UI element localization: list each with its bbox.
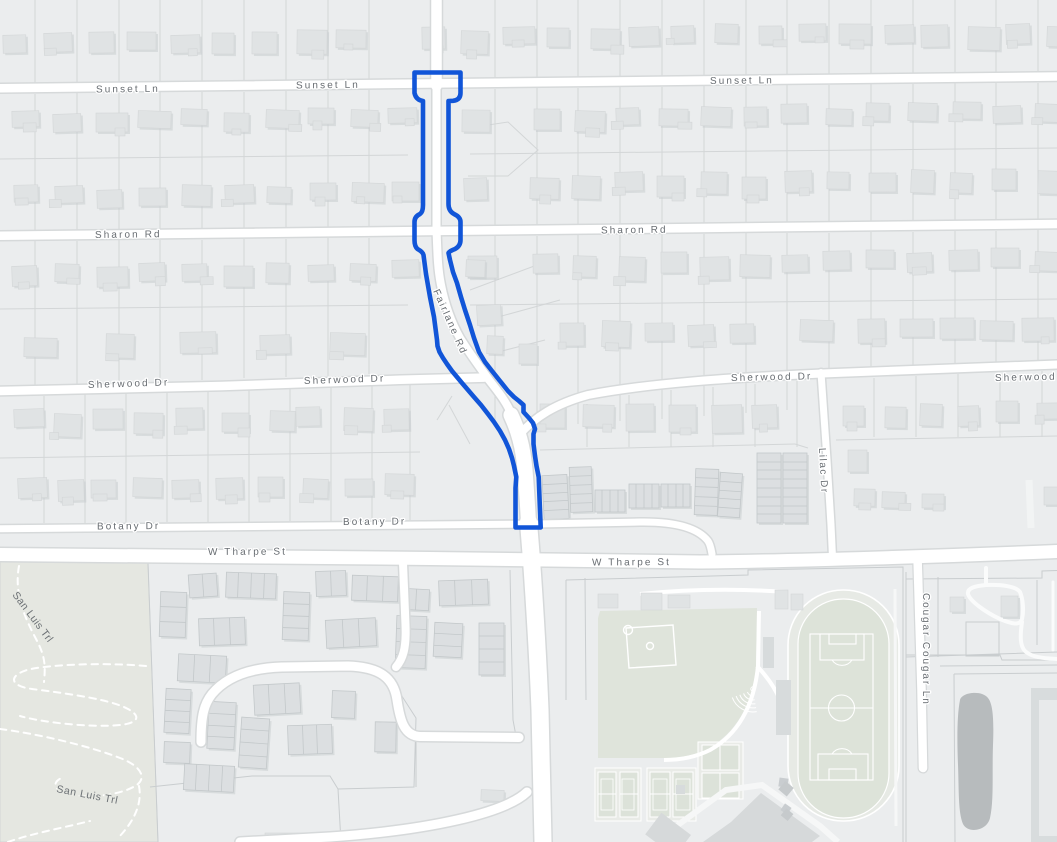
svg-text:Botany Dr: Botany Dr [97,521,160,533]
svg-text:Cougar Cougar Ln: Cougar Cougar Ln [920,593,931,706]
svg-text:Botany Dr: Botany Dr [343,516,406,528]
svg-text:Sherwood: Sherwood [995,372,1057,384]
svg-text:Sharon Rd: Sharon Rd [601,225,668,237]
svg-text:Sunset Ln: Sunset Ln [710,75,774,87]
svg-text:W Tharpe St: W Tharpe St [592,557,671,568]
svg-text:Sunset Ln: Sunset Ln [296,80,360,92]
svg-text:W Tharpe St: W Tharpe St [208,547,287,558]
svg-text:Sunset Ln: Sunset Ln [96,84,160,96]
svg-text:Sharon Rd: Sharon Rd [95,229,162,241]
svg-text:Sherwood Dr: Sherwood Dr [731,371,813,384]
